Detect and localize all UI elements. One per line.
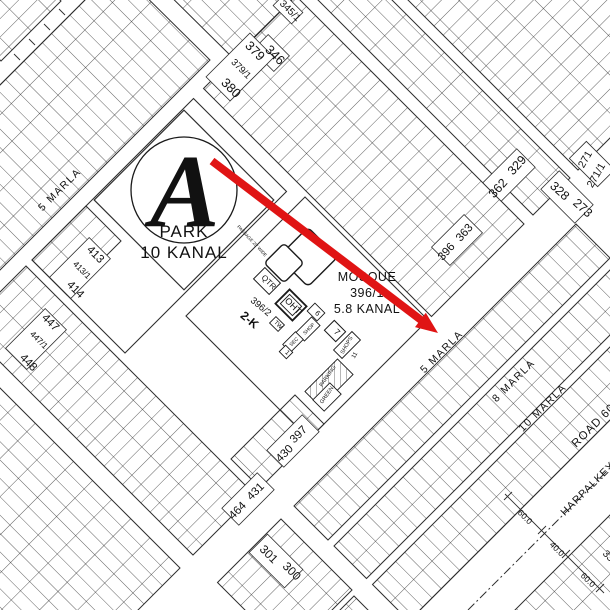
park-size-label: 10 KANAL	[140, 243, 227, 262]
road-label-harpalke: HARPALKEY	[558, 459, 610, 518]
dimension-label: 60.0	[516, 507, 535, 526]
park-label: PARK	[159, 222, 208, 241]
site-plan-map: A PARK 10 KANAL MOSQUE 396/1 5.8 KANAL	[0, 0, 610, 610]
mosque-size-label: 5.8 KANAL	[334, 302, 400, 316]
